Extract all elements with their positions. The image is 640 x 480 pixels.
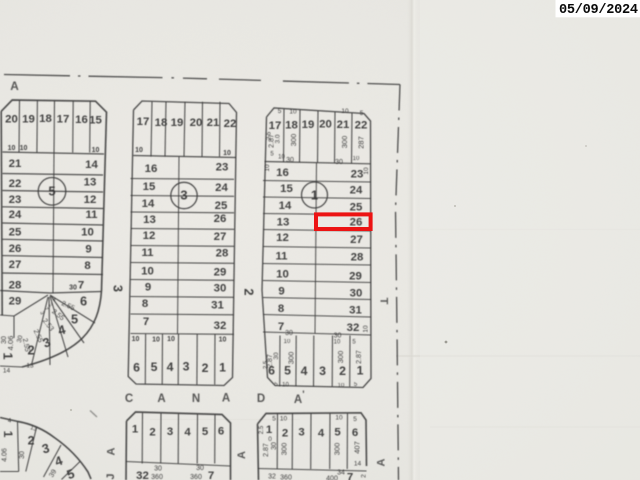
svg-text:28: 28	[351, 252, 364, 264]
svg-text:19: 19	[22, 114, 35, 126]
svg-text:29: 29	[214, 267, 227, 279]
svg-text:15: 15	[280, 183, 293, 195]
svg-text:14: 14	[3, 368, 11, 375]
svg-text:4: 4	[184, 427, 191, 439]
svg-text:22: 22	[9, 178, 22, 190]
svg-text:30: 30	[154, 465, 162, 472]
svg-text:C: C	[125, 393, 133, 405]
svg-text:12: 12	[143, 230, 156, 242]
svg-text:16: 16	[145, 163, 158, 175]
svg-text:30: 30	[69, 284, 77, 291]
svg-text:A: A	[236, 451, 248, 459]
svg-text:32: 32	[214, 320, 227, 332]
svg-text:10: 10	[132, 336, 140, 343]
svg-text:9: 9	[85, 244, 91, 256]
svg-text:17: 17	[269, 120, 282, 132]
svg-text:2: 2	[28, 433, 35, 447]
svg-text:18: 18	[285, 120, 298, 132]
svg-text:A: A	[157, 393, 165, 405]
svg-text:30: 30	[285, 330, 293, 337]
svg-text:05/09/2024: 05/09/2024	[559, 3, 638, 18]
svg-text:30: 30	[335, 159, 343, 166]
svg-text:7: 7	[208, 470, 214, 480]
svg-text:13: 13	[277, 217, 290, 229]
svg-text:5: 5	[278, 108, 282, 115]
svg-text:24: 24	[9, 209, 22, 221]
svg-text:29: 29	[9, 296, 22, 308]
svg-text:2: 2	[361, 474, 368, 478]
svg-text:300: 300	[286, 352, 295, 365]
svg-text:30: 30	[1, 336, 8, 344]
svg-text:26: 26	[350, 217, 363, 229]
svg-text:26: 26	[9, 243, 22, 255]
svg-text:17: 17	[57, 114, 70, 126]
svg-text:30: 30	[19, 451, 26, 459]
svg-text:4: 4	[301, 364, 308, 378]
svg-text:2.87: 2.87	[356, 350, 363, 364]
svg-text:A: A	[294, 394, 302, 406]
svg-text:7: 7	[78, 280, 84, 292]
svg-text:300: 300	[332, 443, 341, 456]
svg-text:1: 1	[357, 363, 364, 377]
svg-text:12: 12	[276, 232, 289, 244]
svg-text:300: 300	[336, 351, 345, 364]
svg-text:7: 7	[347, 472, 353, 480]
svg-text:21: 21	[337, 119, 350, 131]
svg-text:18: 18	[155, 117, 168, 129]
svg-text:360: 360	[190, 474, 202, 480]
svg-text:15: 15	[143, 181, 156, 193]
svg-text:13: 13	[84, 177, 97, 189]
svg-text:1: 1	[1, 431, 15, 438]
svg-text:10: 10	[264, 164, 271, 172]
svg-text:10: 10	[20, 145, 28, 152]
svg-text:T: T	[378, 298, 390, 305]
svg-text:7: 7	[278, 321, 284, 333]
svg-text:10: 10	[276, 269, 289, 281]
svg-text:10: 10	[353, 156, 360, 162]
svg-text:1: 1	[266, 424, 273, 436]
svg-text:14: 14	[85, 159, 98, 171]
svg-text:2: 2	[282, 428, 288, 440]
svg-text:400: 400	[326, 475, 338, 480]
svg-text:25: 25	[350, 202, 363, 214]
svg-text:5: 5	[360, 110, 364, 117]
svg-text:10: 10	[81, 227, 94, 239]
svg-text:13: 13	[143, 214, 156, 226]
svg-text:J: J	[105, 473, 117, 479]
svg-text:6: 6	[218, 426, 224, 438]
svg-text:2: 2	[242, 289, 256, 296]
svg-text:A: A	[375, 458, 387, 466]
svg-text:15: 15	[89, 115, 102, 127]
svg-text:27: 27	[214, 231, 227, 243]
svg-text:24: 24	[350, 185, 363, 197]
svg-text:34: 34	[337, 469, 345, 476]
svg-text:1: 1	[1, 352, 16, 359]
svg-text:21: 21	[207, 117, 220, 129]
svg-text:23: 23	[9, 194, 22, 206]
svg-text:2: 2	[202, 361, 209, 375]
svg-text:9: 9	[145, 282, 151, 294]
svg-text:3: 3	[298, 427, 304, 439]
svg-text:360: 360	[151, 474, 163, 480]
svg-text:3: 3	[183, 359, 190, 373]
svg-text:3: 3	[319, 364, 326, 378]
svg-text:5: 5	[71, 311, 78, 326]
svg-text:5: 5	[202, 426, 209, 438]
svg-text:13: 13	[26, 363, 34, 370]
svg-text:6: 6	[80, 293, 87, 308]
svg-text:30: 30	[273, 352, 280, 360]
svg-text:10: 10	[223, 150, 231, 157]
svg-text:30: 30	[350, 288, 363, 300]
svg-text:25: 25	[9, 227, 22, 239]
svg-text:1: 1	[132, 424, 139, 436]
svg-text:12: 12	[84, 194, 97, 206]
svg-text:20: 20	[319, 119, 332, 131]
svg-text:3: 3	[180, 187, 187, 202]
svg-text:30: 30	[214, 283, 227, 295]
svg-text:30: 30	[286, 157, 294, 164]
svg-text:24: 24	[215, 182, 228, 194]
svg-text:10: 10	[341, 108, 349, 115]
svg-text:2.5: 2.5	[259, 425, 265, 434]
svg-text:23: 23	[216, 162, 229, 174]
svg-text:32: 32	[347, 322, 360, 334]
svg-text:': '	[302, 390, 304, 401]
svg-text:300: 300	[279, 443, 288, 456]
svg-text:10: 10	[334, 340, 341, 346]
svg-text:10: 10	[219, 336, 227, 343]
svg-text:10: 10	[135, 147, 143, 154]
svg-text:11: 11	[141, 247, 154, 259]
svg-text:10: 10	[141, 266, 154, 278]
svg-text:27: 27	[9, 259, 22, 271]
svg-text:11: 11	[275, 251, 288, 263]
svg-text:5: 5	[272, 416, 276, 423]
svg-text:19: 19	[171, 117, 184, 129]
svg-text:10: 10	[363, 325, 370, 333]
svg-text:10: 10	[338, 383, 345, 389]
svg-text:29: 29	[349, 271, 362, 283]
svg-text:10: 10	[167, 336, 175, 343]
svg-text:5: 5	[284, 363, 291, 377]
svg-text:2: 2	[339, 364, 346, 378]
svg-text:A: A	[222, 393, 230, 405]
svg-text:30: 30	[196, 465, 204, 472]
svg-text:A: A	[105, 447, 117, 455]
svg-text:30: 30	[271, 442, 278, 450]
svg-text:8: 8	[84, 260, 90, 272]
svg-text:14: 14	[142, 198, 155, 210]
svg-text:17: 17	[137, 116, 150, 128]
svg-text:4.06: 4.06	[2, 448, 9, 462]
svg-text:14: 14	[279, 200, 292, 212]
svg-text:10: 10	[8, 145, 16, 152]
svg-text:31: 31	[349, 305, 362, 317]
svg-text:32: 32	[268, 473, 276, 480]
svg-text:10: 10	[280, 416, 288, 423]
svg-text:407: 407	[352, 441, 361, 454]
svg-text:10: 10	[92, 147, 100, 154]
svg-text:31: 31	[211, 300, 224, 312]
svg-text:28: 28	[9, 280, 22, 292]
svg-text:7: 7	[143, 316, 149, 328]
svg-text:4: 4	[167, 360, 174, 374]
svg-text:10: 10	[363, 167, 370, 175]
svg-text:16: 16	[75, 114, 88, 126]
svg-text:23: 23	[351, 169, 364, 181]
svg-text:6: 6	[352, 427, 358, 439]
svg-text:4: 4	[318, 428, 325, 440]
svg-text:10: 10	[284, 339, 291, 345]
svg-text:25: 25	[215, 200, 228, 212]
svg-text:20: 20	[190, 117, 203, 129]
svg-text:27: 27	[350, 234, 363, 246]
svg-text:9: 9	[278, 286, 284, 298]
svg-text:22: 22	[355, 120, 368, 132]
svg-text:19: 19	[302, 119, 315, 131]
svg-text:5: 5	[151, 360, 158, 374]
svg-text:300: 300	[340, 136, 349, 149]
svg-text:A: A	[10, 79, 19, 93]
svg-text:10: 10	[152, 336, 160, 343]
svg-text:10: 10	[335, 415, 343, 422]
svg-text:10: 10	[289, 109, 297, 116]
svg-text:5: 5	[353, 416, 357, 423]
svg-text:30: 30	[334, 332, 342, 339]
svg-text:1: 1	[219, 360, 226, 374]
svg-text:10: 10	[282, 383, 289, 389]
svg-text:360: 360	[280, 474, 292, 480]
svg-text:1: 1	[311, 187, 318, 202]
svg-text:5: 5	[48, 183, 55, 198]
svg-text:10: 10	[278, 155, 285, 161]
svg-text:32: 32	[136, 470, 149, 480]
svg-text:3.0: 3.0	[275, 134, 282, 143]
svg-text:3: 3	[111, 285, 125, 292]
svg-text:22: 22	[224, 118, 237, 130]
svg-text:18: 18	[39, 113, 52, 125]
svg-text:2.87: 2.87	[263, 443, 270, 457]
svg-text:300: 300	[289, 134, 298, 147]
svg-text:26: 26	[214, 213, 227, 225]
svg-text:11: 11	[85, 209, 98, 221]
svg-text:6: 6	[133, 360, 140, 374]
svg-text:D: D	[257, 393, 265, 405]
svg-text:287: 287	[356, 136, 365, 149]
svg-text:21: 21	[9, 158, 22, 170]
svg-text:16: 16	[276, 167, 289, 179]
svg-text:8: 8	[142, 298, 148, 310]
svg-text:20: 20	[5, 114, 18, 126]
svg-text:28: 28	[216, 248, 229, 260]
svg-text:2: 2	[149, 427, 155, 439]
svg-text:14: 14	[354, 461, 362, 468]
svg-text:3: 3	[167, 426, 173, 438]
svg-text:N: N	[192, 393, 200, 405]
svg-text:5: 5	[334, 427, 341, 439]
svg-text:8: 8	[278, 303, 284, 315]
